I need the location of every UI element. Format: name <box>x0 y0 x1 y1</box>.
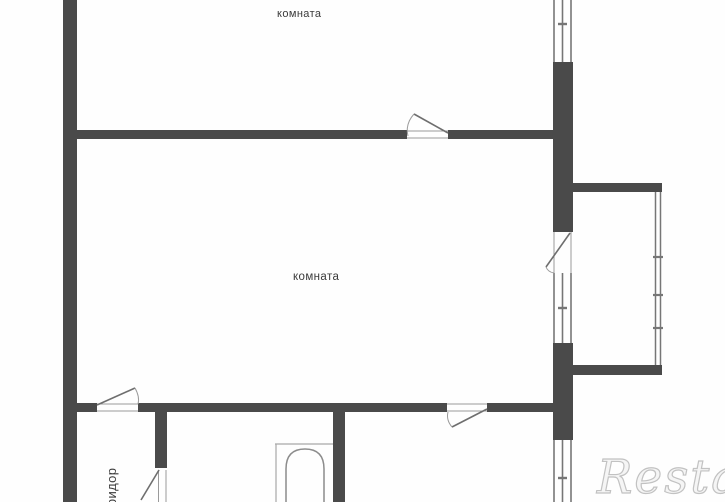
window-kitchen <box>554 440 571 502</box>
window-middle-room <box>554 273 571 343</box>
door-corridor <box>97 388 139 411</box>
corridor-label: коридор <box>104 468 119 502</box>
bathtub <box>275 444 333 502</box>
door-kitchen <box>447 404 487 427</box>
window-top-room <box>554 0 571 62</box>
door-room-divider <box>407 114 448 138</box>
balcony-glazing <box>653 192 663 365</box>
floorplan: комната комната коридор Restate <box>0 0 725 502</box>
room-middle-label: комната <box>293 271 339 283</box>
door-balcony <box>546 232 571 273</box>
room-top-label: комната <box>277 8 321 20</box>
thin-lines-overlay <box>0 0 725 502</box>
watermark-restate: Restate <box>597 450 725 502</box>
door-bathroom <box>141 470 166 502</box>
